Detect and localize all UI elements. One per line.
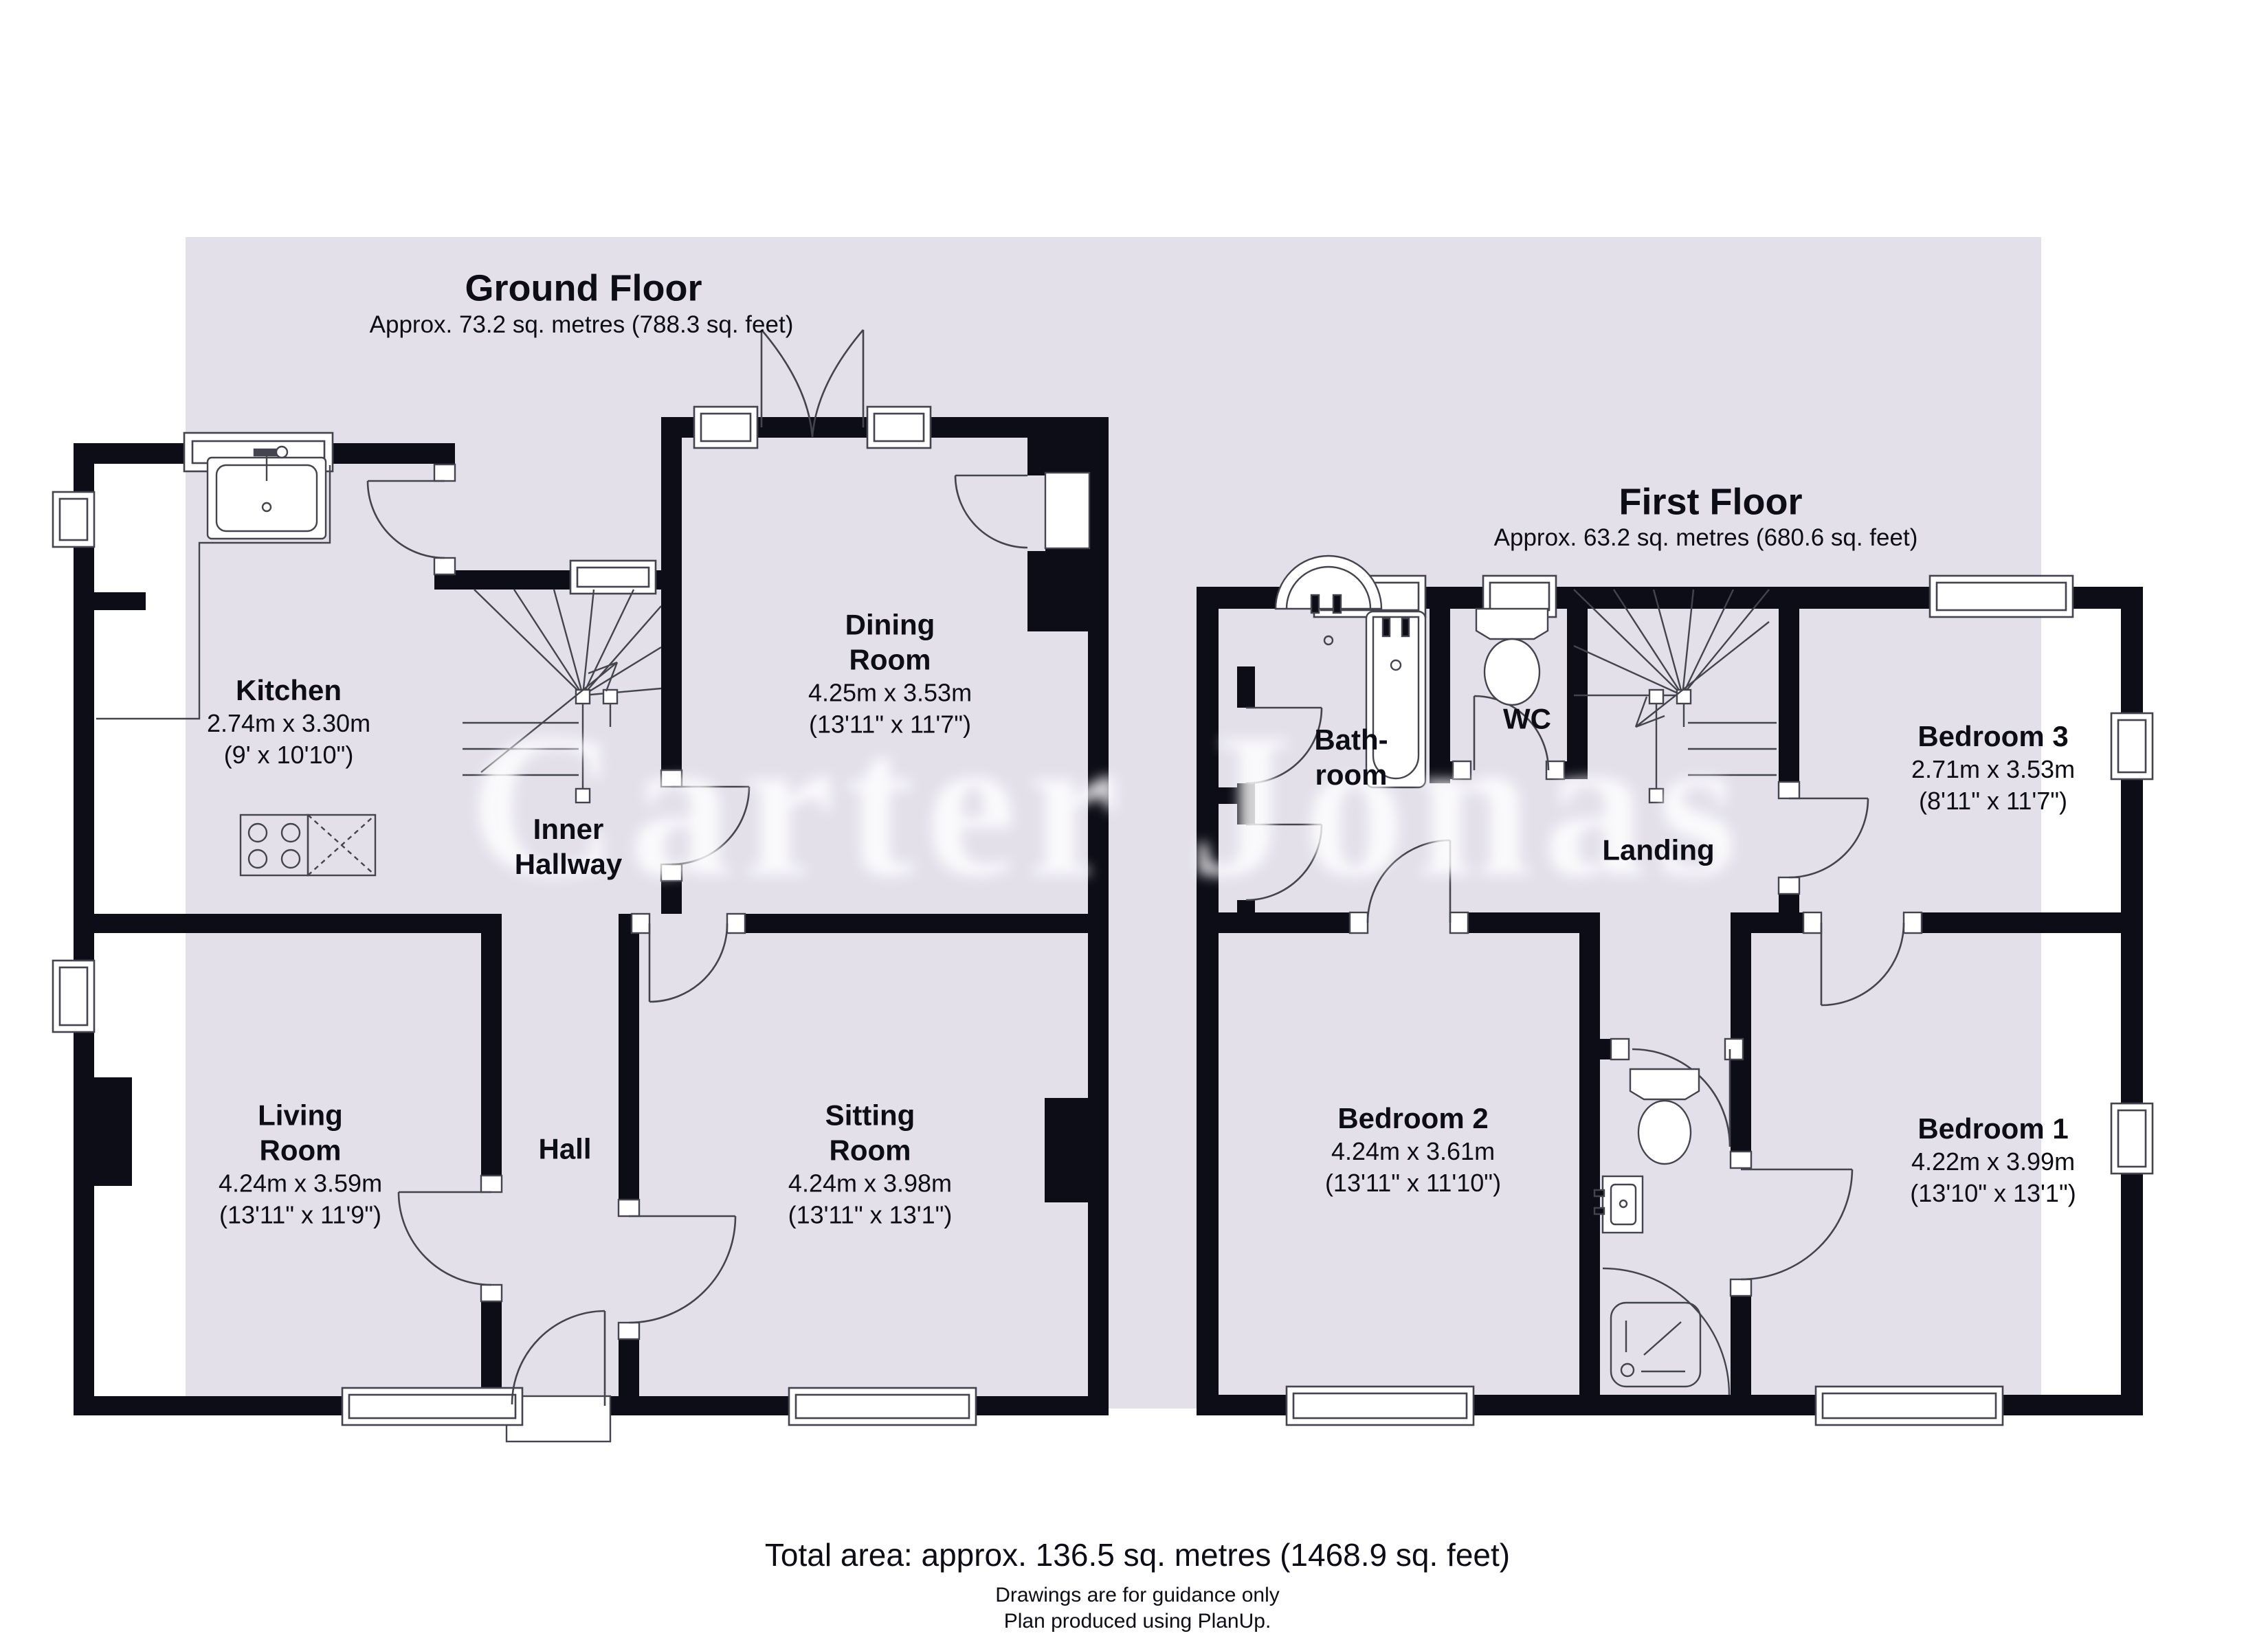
bedroom1-imperial: (13'10" x 13'1") — [1910, 1178, 2076, 1209]
bedroom2-metric: 4.24m x 3.61m — [1325, 1136, 1501, 1167]
sitting-metric: 4.24m x 3.98m — [788, 1168, 953, 1199]
room-label-kitchen: Kitchen 2.74m x 3.30m (9' x 10'10") — [207, 673, 370, 770]
watermark: Carter Jonas — [469, 687, 1748, 924]
room-label-dining: Dining Room 4.25m x 3.53m (13'11" x 11'7… — [808, 607, 972, 739]
sitting-name-1: Sitting — [788, 1097, 953, 1132]
bathroom-name-1: Bath- — [1314, 722, 1388, 757]
room-label-bedroom2: Bedroom 2 4.24m x 3.61m (13'11" x 11'10"… — [1325, 1101, 1501, 1198]
bedroom3-name: Bedroom 3 — [1911, 719, 2075, 754]
sitting-imperial: (13'11" x 13'1") — [788, 1199, 953, 1230]
living-name-1: Living — [219, 1097, 382, 1132]
ground-floor-title: Ground Floor — [465, 268, 702, 309]
floorplan-page: Carter Jonas Ground Floor Approx. 73.2 s… — [0, 0, 2268, 1649]
ground-floor-area: Approx. 73.2 sq. metres (788.3 sq. feet) — [370, 312, 794, 339]
dining-metric: 4.25m x 3.53m — [808, 677, 972, 708]
ground-floor-title-text: Ground Floor — [465, 267, 702, 309]
living-imperial: (13'11" x 11'9") — [219, 1199, 382, 1230]
bedroom3-imperial: (8'11" x 11'7") — [1911, 785, 2075, 816]
hall-name: Hall — [538, 1131, 591, 1166]
dining-name-1: Dining — [808, 607, 972, 642]
bedroom1-name: Bedroom 1 — [1910, 1111, 2076, 1146]
bathroom-name-2: room — [1314, 757, 1388, 792]
room-label-hall: Hall — [538, 1131, 591, 1166]
first-floor-area: Approx. 63.2 sq. metres (680.6 sq. feet) — [1494, 525, 1918, 552]
room-label-bathroom: Bath- room — [1314, 722, 1388, 792]
room-label-wc: WC — [1503, 701, 1551, 736]
ensuite-basin-icon — [1594, 1176, 1643, 1233]
dining-imperial: (13'11" x 11'7") — [808, 708, 972, 739]
total-area-text: Total area: approx. 136.5 sq. metres (14… — [765, 1536, 1510, 1573]
guidance-note: Drawings are for guidance only — [995, 1584, 1280, 1607]
room-label-living: Living Room 4.24m x 3.59m (13'11" x 11'9… — [219, 1097, 382, 1230]
living-name-2: Room — [219, 1133, 382, 1168]
room-label-bedroom3: Bedroom 3 2.71m x 3.53m (8'11" x 11'7") — [1911, 719, 2075, 816]
inner-name-2: Hallway — [515, 846, 622, 882]
room-label-sitting: Sitting Room 4.24m x 3.98m (13'11" x 13'… — [788, 1097, 953, 1230]
inner-name-1: Inner — [515, 811, 622, 846]
bedroom1-metric: 4.22m x 3.99m — [1910, 1146, 2076, 1177]
bedroom3-metric: 2.71m x 3.53m — [1911, 754, 2075, 785]
kitchen-name: Kitchen — [207, 673, 370, 708]
door-openings — [434, 475, 1904, 1415]
dining-name-2: Room — [808, 642, 972, 677]
corner-shower-icon — [1603, 1268, 1729, 1395]
room-label-bedroom1: Bedroom 1 4.22m x 3.99m (13'10" x 13'1") — [1910, 1111, 2076, 1209]
ground-floor-area-text: Approx. 73.2 sq. metres (788.3 sq. feet) — [370, 311, 794, 338]
kitchen-imperial: (9' x 10'10") — [207, 739, 370, 770]
living-metric: 4.24m x 3.59m — [219, 1168, 382, 1199]
kitchen-sink-icon — [208, 447, 326, 539]
bedroom2-imperial: (13'11" x 11'10") — [1325, 1167, 1501, 1198]
sitting-name-2: Room — [788, 1133, 953, 1168]
first-floor-title: First Floor — [1619, 482, 1803, 522]
room-label-inner-hallway: Inner Hallway — [515, 811, 622, 882]
landing-name: Landing — [1602, 832, 1714, 867]
bedroom2-name: Bedroom 2 — [1325, 1101, 1501, 1136]
first-floor-title-text: First Floor — [1619, 481, 1803, 522]
wc-name: WC — [1503, 701, 1551, 736]
kitchen-hob-icon — [241, 815, 375, 875]
ensuite-toilet-icon — [1630, 1069, 1699, 1164]
kitchen-metric: 2.74m x 3.30m — [207, 708, 370, 739]
room-label-landing: Landing — [1602, 832, 1714, 867]
first-floor-area-text: Approx. 63.2 sq. metres (680.6 sq. feet) — [1494, 524, 1918, 551]
planup-credit: Plan produced using PlanUp. — [1004, 1610, 1271, 1633]
